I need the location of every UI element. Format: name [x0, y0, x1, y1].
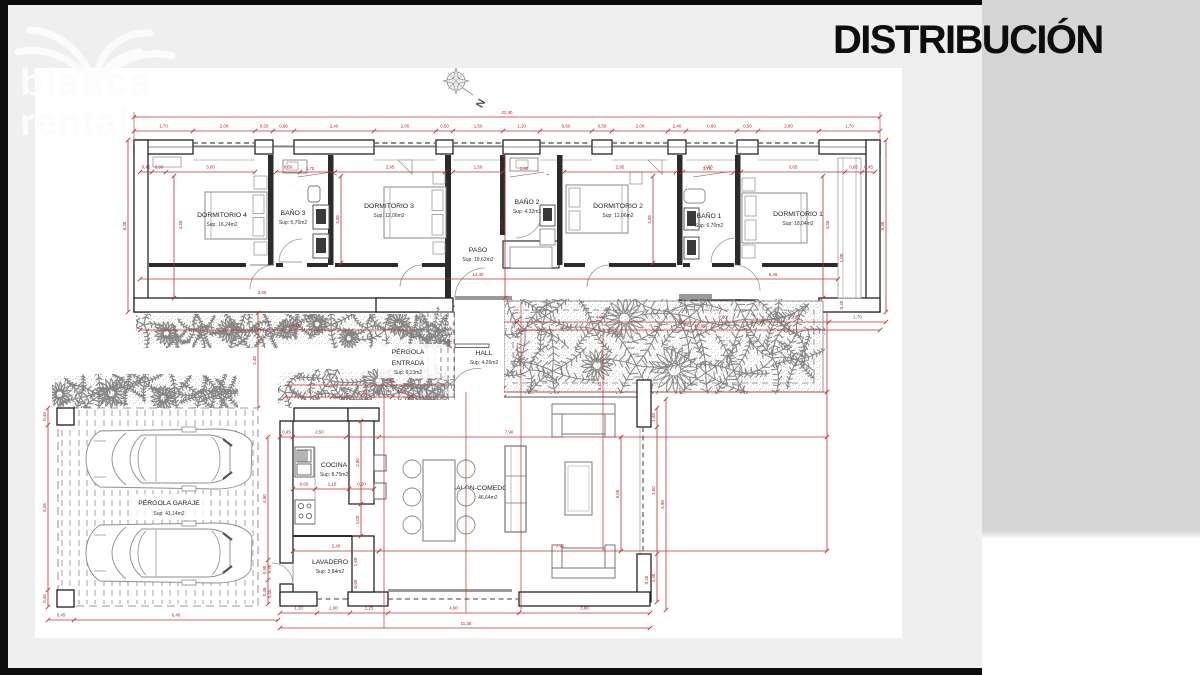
svg-text:3,35: 3,35 [335, 215, 340, 224]
svg-text:Sup: 3,84m2: Sup: 3,84m2 [316, 569, 345, 575]
svg-text:Sup: 5,70m2: Sup: 5,70m2 [279, 220, 308, 226]
svg-text:0,60: 0,60 [279, 124, 288, 129]
svg-text:2,40: 2,40 [332, 544, 341, 549]
svg-text:1,10: 1,10 [517, 124, 526, 129]
svg-text:HALL: HALL [475, 350, 492, 357]
svg-text:ENTRADA: ENTRADA [392, 360, 425, 367]
svg-text:0,50: 0,50 [260, 124, 269, 129]
svg-text:5,45: 5,45 [769, 272, 778, 277]
svg-text:BAÑO 3: BAÑO 3 [281, 208, 306, 217]
svg-text:1,00: 1,00 [329, 606, 338, 611]
svg-text:Sup: 4,32m2: Sup: 4,32m2 [513, 209, 542, 215]
svg-text:0,45: 0,45 [42, 594, 47, 603]
svg-text:3,90: 3,90 [580, 606, 589, 611]
svg-text:Sup: 18,62m2: Sup: 18,62m2 [462, 257, 493, 263]
svg-text:4,45: 4,45 [178, 220, 183, 229]
svg-text:0,60: 0,60 [155, 165, 164, 170]
svg-text:3,65: 3,65 [789, 165, 798, 170]
svg-text:2,40: 2,40 [673, 124, 682, 129]
svg-text:2,80: 2,80 [718, 315, 727, 320]
svg-text:1,10: 1,10 [328, 482, 337, 487]
svg-text:12,40: 12,40 [473, 272, 485, 277]
svg-text:9,70: 9,70 [292, 323, 301, 328]
svg-text:0,45: 0,45 [267, 589, 272, 598]
svg-text:BAÑO 1: BAÑO 1 [697, 211, 722, 220]
svg-text:1,50: 1,50 [474, 124, 483, 129]
svg-text:5,35: 5,35 [42, 503, 47, 512]
svg-text:0,55: 0,55 [397, 390, 406, 395]
svg-text:0,65: 0,65 [849, 165, 858, 170]
svg-text:Sup: 6,13m2: Sup: 6,13m2 [394, 370, 423, 376]
svg-text:0,90: 0,90 [267, 564, 272, 573]
svg-text:0,45: 0,45 [57, 613, 66, 618]
svg-text:3,00: 3,00 [206, 165, 215, 170]
svg-text:PÉRGOLA GARAJE: PÉRGOLA GARAJE [138, 498, 200, 507]
svg-text:1,25: 1,25 [365, 606, 374, 611]
svg-text:Sup: 12,06m2: Sup: 12,06m2 [602, 213, 633, 219]
svg-text:2,95: 2,95 [386, 165, 395, 170]
svg-text:3,65: 3,65 [258, 290, 267, 295]
svg-text:COCINA: COCINA [321, 462, 348, 469]
svg-text:2,00: 2,00 [220, 124, 229, 129]
svg-text:2,00: 2,00 [784, 124, 793, 129]
svg-text:0,45: 0,45 [597, 381, 602, 390]
svg-text:LAVADERO: LAVADERO [312, 559, 348, 566]
svg-text:1,70: 1,70 [159, 124, 168, 129]
svg-text:2,95: 2,95 [616, 165, 625, 170]
svg-text:1,00: 1,00 [355, 515, 360, 524]
svg-text:1,70: 1,70 [845, 124, 854, 129]
svg-text:0,45: 0,45 [864, 165, 873, 170]
svg-text:1,48: 1,48 [651, 573, 656, 582]
svg-text:Sup: 18,04m2: Sup: 18,04m2 [782, 221, 813, 227]
svg-text:BAÑO 2: BAÑO 2 [515, 197, 540, 206]
svg-text:1,50: 1,50 [474, 165, 483, 170]
svg-text:1,70: 1,70 [306, 166, 315, 171]
svg-text:0,45: 0,45 [142, 165, 151, 170]
svg-text:6,95: 6,95 [660, 500, 665, 509]
svg-text:PÉRGOLA: PÉRGOLA [392, 347, 425, 356]
svg-text:22,40: 22,40 [502, 110, 514, 115]
svg-text:4,95: 4,95 [596, 315, 605, 320]
svg-text:DORMITORIO 4: DORMITORIO 4 [197, 212, 247, 219]
svg-text:2,48: 2,48 [252, 356, 257, 365]
svg-text:5,35: 5,35 [122, 221, 127, 230]
svg-text:6,35: 6,35 [386, 378, 395, 383]
svg-text:2,00: 2,00 [636, 124, 645, 129]
svg-text:1,48: 1,48 [651, 413, 656, 422]
svg-text:7,90: 7,90 [505, 430, 514, 435]
svg-text:DORMITORIO 2: DORMITORIO 2 [593, 203, 643, 210]
svg-text:0,60: 0,60 [300, 482, 309, 487]
svg-text:5,35: 5,35 [880, 221, 885, 230]
svg-text:11,30: 11,30 [461, 621, 472, 626]
svg-text:6,40: 6,40 [172, 613, 181, 618]
svg-text:2,50: 2,50 [315, 430, 324, 435]
svg-text:4,50: 4,50 [262, 494, 267, 503]
svg-text:0,45: 0,45 [839, 300, 844, 309]
svg-text:Sup: 4,26m2: Sup: 4,26m2 [470, 360, 499, 366]
svg-text:1,70: 1,70 [703, 166, 712, 171]
svg-text:0,45: 0,45 [644, 575, 649, 584]
svg-text:Sup: 6,70m2: Sup: 6,70m2 [695, 223, 724, 229]
svg-text:1,80: 1,80 [358, 390, 367, 395]
svg-text:0,50: 0,50 [440, 124, 449, 129]
svg-text:4,45: 4,45 [499, 220, 504, 229]
svg-text:PASO: PASO [469, 247, 487, 254]
svg-text:0,60: 0,60 [562, 124, 571, 129]
svg-text:0,50: 0,50 [598, 124, 607, 129]
svg-text:2,00: 2,00 [401, 124, 410, 129]
svg-text:Sup: 16,24m2: Sup: 16,24m2 [206, 222, 237, 228]
svg-text:0,45: 0,45 [42, 412, 47, 421]
svg-text:4,45: 4,45 [825, 220, 830, 229]
svg-text:DISTRIBUCIÓN: DISTRIBUCIÓN [833, 16, 1103, 62]
svg-text:6,05: 6,05 [615, 489, 620, 498]
svg-text:10,95: 10,95 [695, 324, 707, 329]
svg-text:1,50: 1,50 [353, 557, 358, 566]
svg-text:Sup: 12,06m2: Sup: 12,06m2 [373, 213, 404, 219]
svg-text:2,00: 2,00 [791, 315, 800, 320]
svg-text:1,70: 1,70 [853, 315, 862, 320]
svg-text:0,45: 0,45 [282, 430, 291, 435]
svg-text:1,10: 1,10 [294, 606, 303, 611]
svg-text:2,40: 2,40 [330, 124, 339, 129]
svg-text:2,50: 2,50 [355, 458, 360, 467]
svg-text:0,50: 0,50 [357, 482, 366, 487]
svg-text:0,60: 0,60 [353, 579, 358, 588]
svg-text:rentals: rentals [20, 102, 152, 144]
svg-text:DORMITORIO 1: DORMITORIO 1 [773, 211, 823, 218]
svg-text:Sup: 8,75m2: Sup: 8,75m2 [320, 472, 349, 478]
svg-text:7,90: 7,90 [556, 544, 565, 549]
svg-text:1,60: 1,60 [520, 166, 529, 171]
svg-text:0,60: 0,60 [284, 165, 293, 170]
svg-text:Sup: 41,14m2: Sup: 41,14m2 [153, 511, 184, 517]
svg-text:4,00: 4,00 [651, 486, 656, 495]
svg-text:3,35: 3,35 [647, 215, 652, 224]
svg-text:1,00: 1,00 [839, 253, 844, 262]
svg-text:blanca: blanca [20, 62, 152, 104]
svg-text:0,50: 0,50 [743, 124, 752, 129]
svg-text:1,40: 1,40 [304, 390, 313, 395]
svg-text:0,60: 0,60 [707, 124, 716, 129]
svg-text:4,00: 4,00 [449, 606, 458, 611]
svg-text:DORMITORIO 3: DORMITORIO 3 [364, 203, 414, 210]
